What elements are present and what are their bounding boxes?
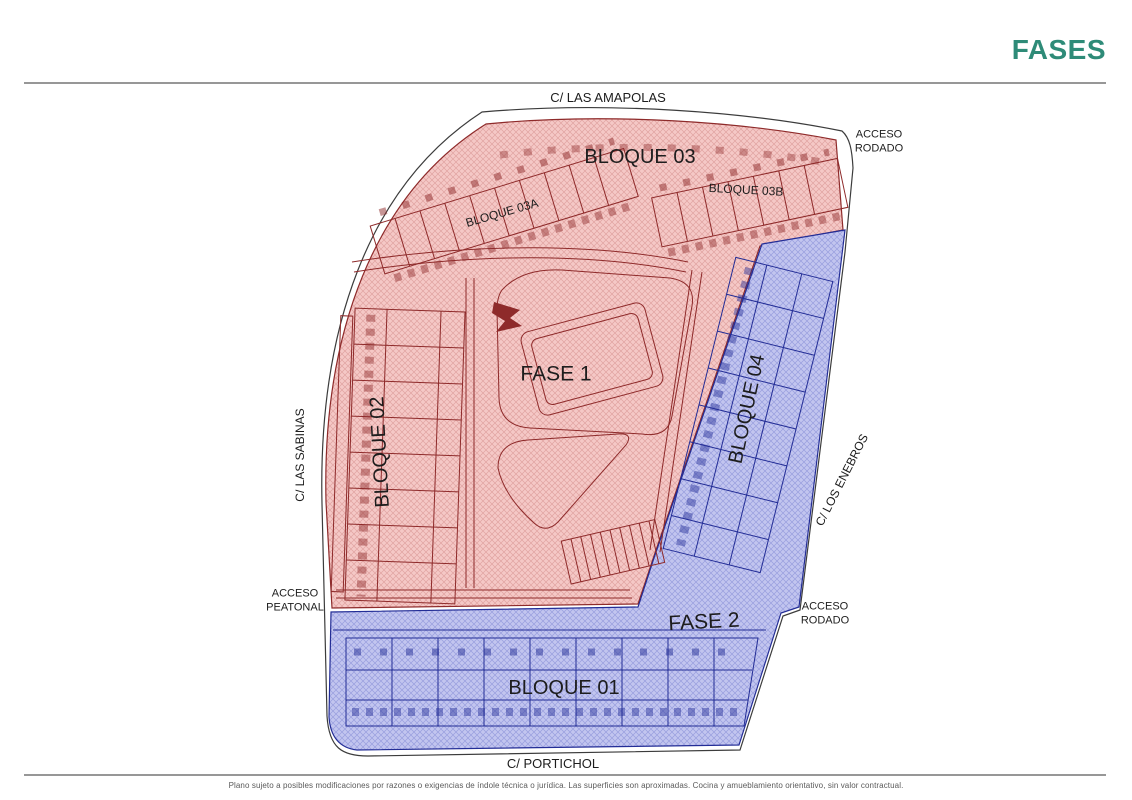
page-title: FASES [1012, 34, 1106, 66]
header-divider [24, 82, 1106, 84]
bloque-01-label: BLOQUE 01 [508, 676, 619, 700]
street-las-amapolas: C/ LAS AMAPOLAS [550, 90, 666, 106]
acceso-peatonal-label: ACCESO PEATONAL [257, 587, 333, 615]
fase-1-label: FASE 1 [520, 361, 591, 386]
footer-divider [24, 774, 1106, 776]
fase-2-label: FASE 2 [668, 608, 740, 637]
disclaimer-text: Plano sujeto a posibles modificaciones p… [0, 781, 1132, 790]
acceso-rodado-bottom-label: ACCESO RODADO [793, 600, 857, 628]
bloque-03-label: BLOQUE 03 [584, 145, 695, 169]
acceso-rodado-top-label: ACCESO RODADO [847, 128, 911, 156]
street-portichol: C/ PORTICHOL [507, 756, 599, 772]
street-las-sabinas: C/ LAS SABINAS [293, 408, 307, 501]
